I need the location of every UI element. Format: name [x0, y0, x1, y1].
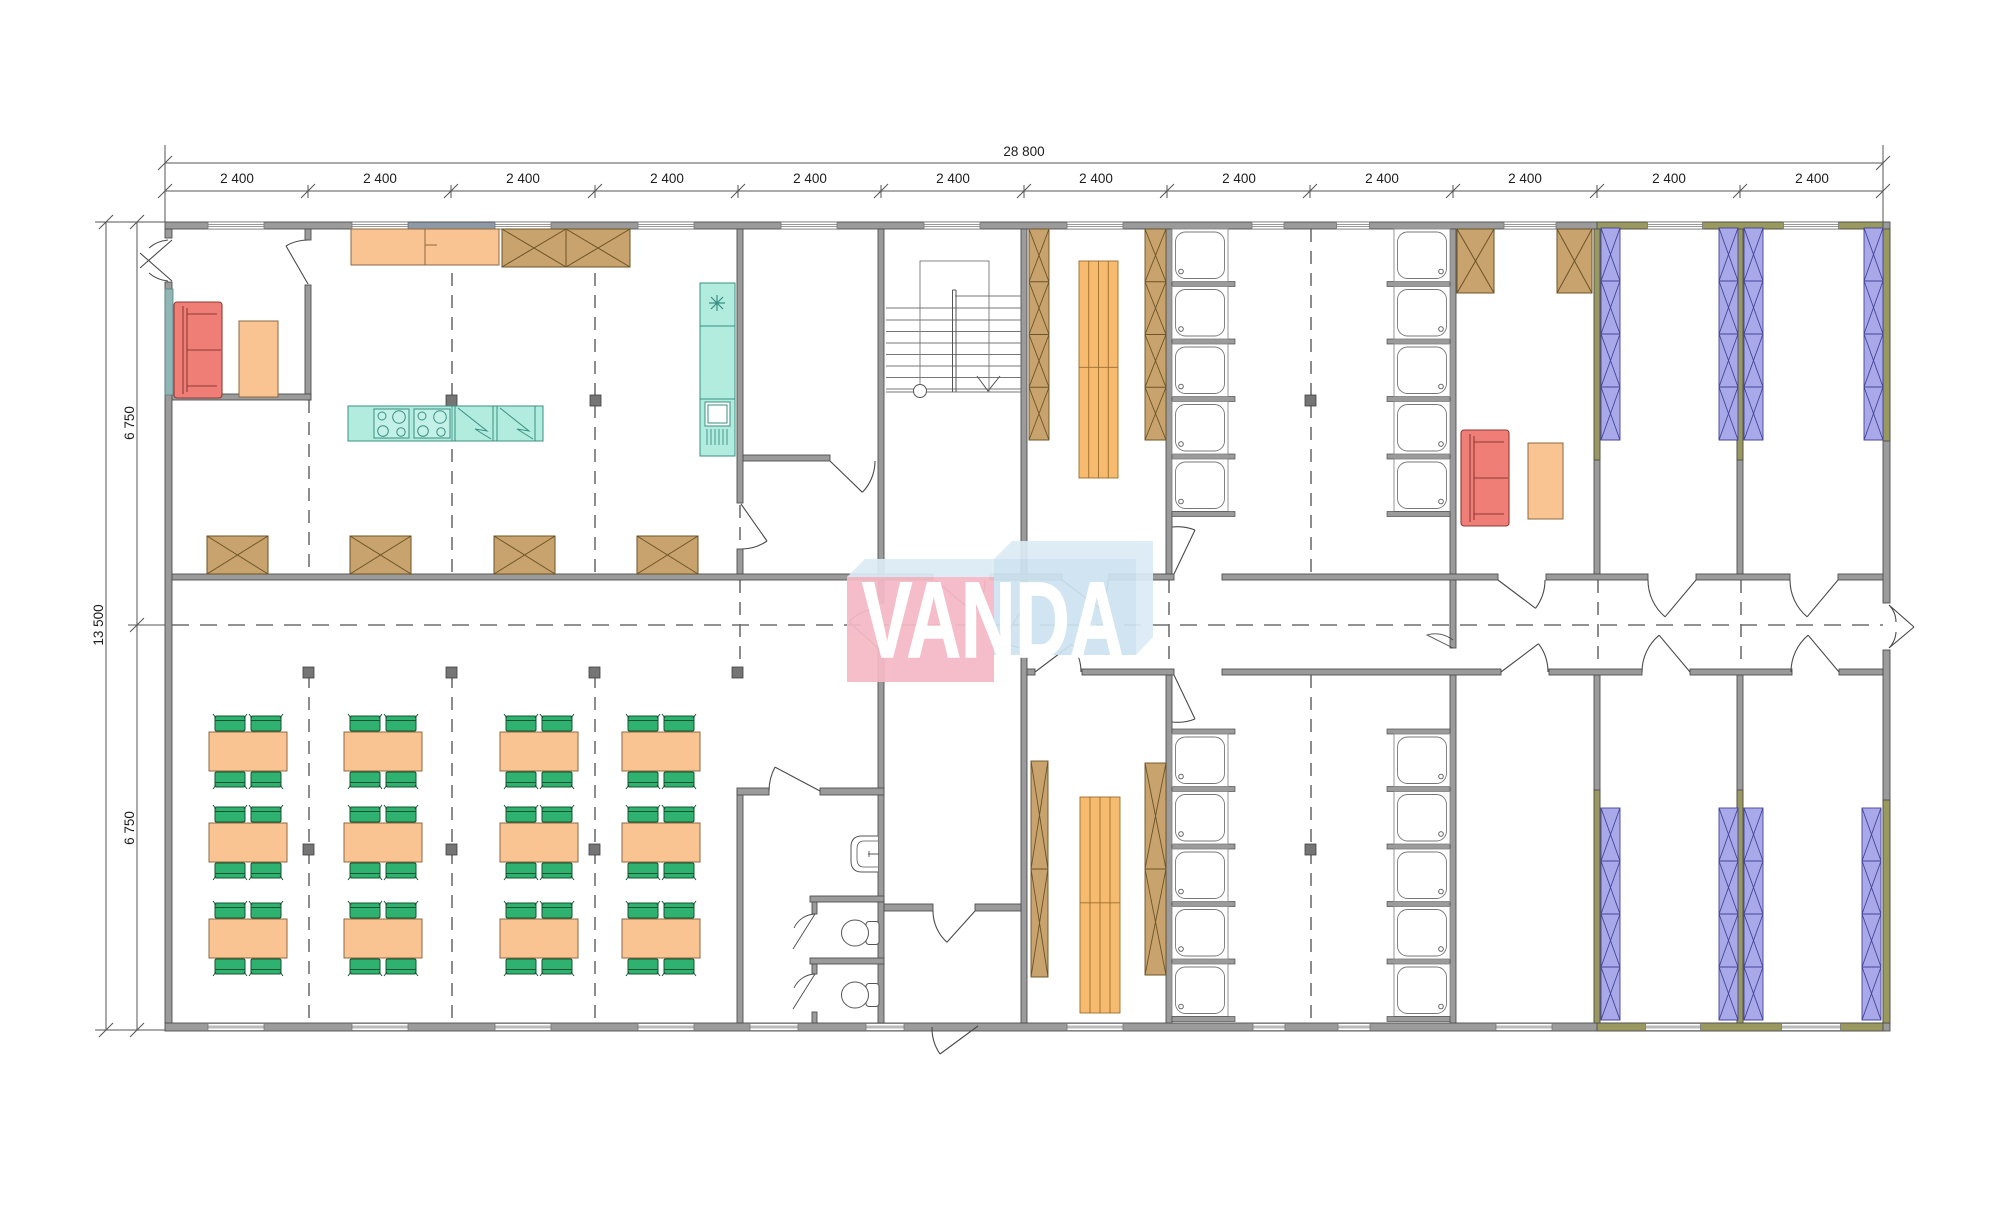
svg-text:2 400: 2 400	[793, 171, 827, 186]
svg-text:2 400: 2 400	[506, 171, 540, 186]
svg-text:2 400: 2 400	[1079, 171, 1113, 186]
svg-text:28 800: 28 800	[1003, 144, 1044, 159]
svg-text:2 400: 2 400	[1508, 171, 1542, 186]
svg-text:2 400: 2 400	[1652, 171, 1686, 186]
svg-text:2 400: 2 400	[1222, 171, 1256, 186]
svg-text:2 400: 2 400	[1365, 171, 1399, 186]
svg-text:13 500: 13 500	[91, 604, 106, 645]
svg-text:2 400: 2 400	[936, 171, 970, 186]
svg-text:2 400: 2 400	[1795, 171, 1829, 186]
svg-text:2 400: 2 400	[363, 171, 397, 186]
svg-text:6 750: 6 750	[122, 811, 137, 845]
svg-text:VANDA: VANDA	[862, 559, 1124, 680]
svg-text:2 400: 2 400	[220, 171, 254, 186]
svg-text:6 750: 6 750	[122, 406, 137, 440]
svg-text:2 400: 2 400	[650, 171, 684, 186]
